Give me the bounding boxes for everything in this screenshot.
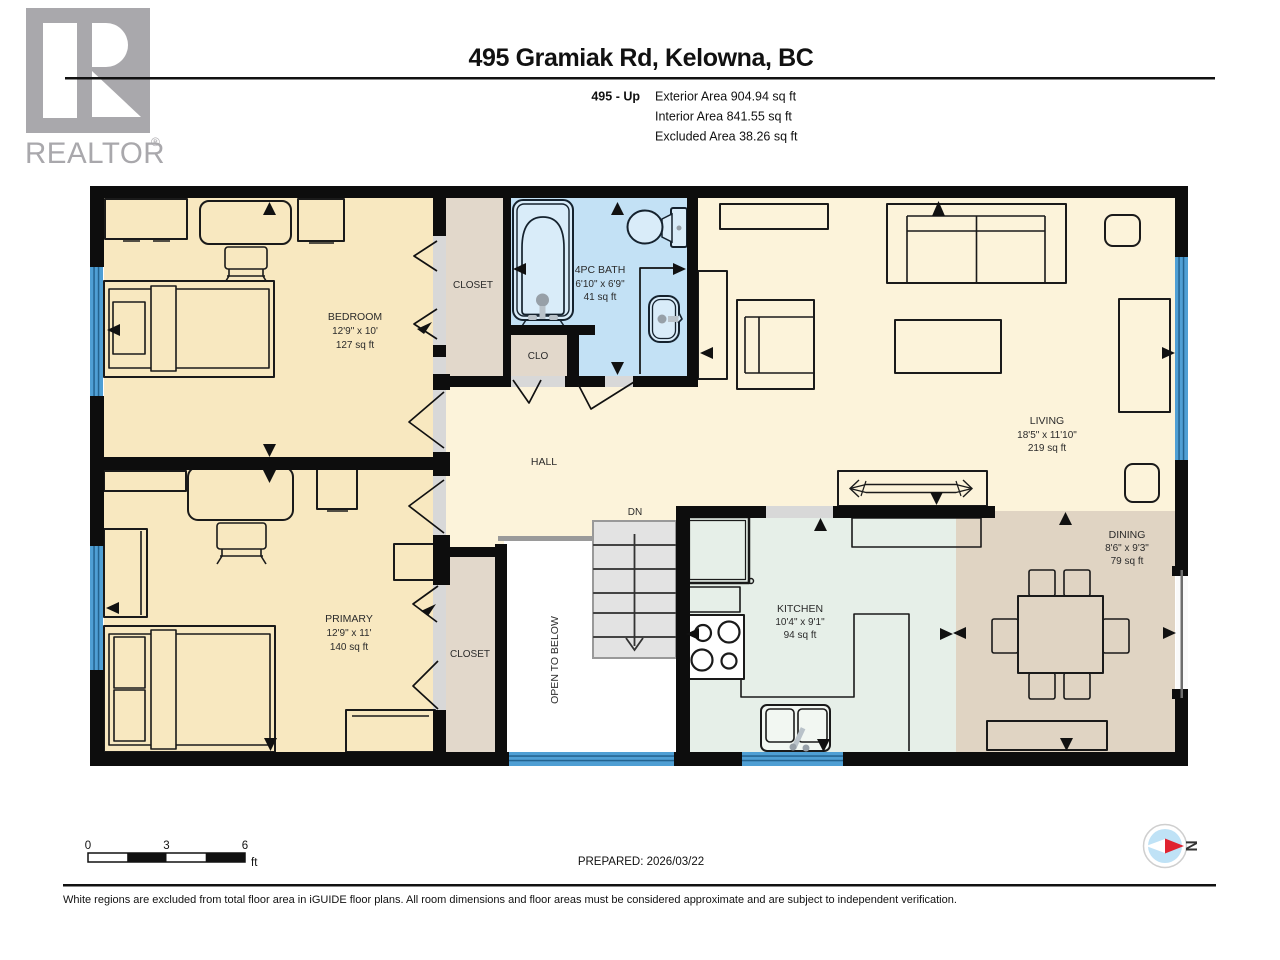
svg-text:White regions are excluded fro: White regions are excluded from total fl… (63, 894, 957, 906)
svg-text:6: 6 (242, 840, 248, 852)
svg-text:140 sq ft: 140 sq ft (330, 642, 369, 653)
svg-text:OPEN TO BELOW: OPEN TO BELOW (549, 616, 561, 704)
svg-text:18'5" x 11'10": 18'5" x 11'10" (1017, 430, 1077, 441)
svg-text:BEDROOM: BEDROOM (328, 311, 382, 323)
svg-text:®: ® (151, 135, 160, 149)
svg-text:KITCHEN: KITCHEN (777, 603, 823, 615)
svg-text:CLO: CLO (528, 351, 549, 362)
svg-text:ft: ft (251, 857, 258, 869)
svg-text:REALTOR: REALTOR (25, 137, 165, 170)
svg-text:PREPARED: 2026/03/22: PREPARED: 2026/03/22 (578, 856, 704, 868)
svg-text:79 sq ft: 79 sq ft (1111, 556, 1144, 567)
svg-text:495 - Up: 495 - Up (591, 90, 640, 104)
svg-text:0: 0 (85, 840, 91, 852)
svg-text:94 sq ft: 94 sq ft (784, 630, 817, 641)
svg-text:495 Gramiak Rd, Kelowna, BC: 495 Gramiak Rd, Kelowna, BC (469, 44, 814, 72)
svg-text:CLOSET: CLOSET (450, 649, 490, 660)
svg-text:Excluded Area 38.26 sq ft: Excluded Area 38.26 sq ft (655, 130, 798, 144)
svg-text:4PC BATH: 4PC BATH (575, 264, 626, 276)
svg-text:Interior Area 841.55 sq ft: Interior Area 841.55 sq ft (655, 110, 792, 124)
svg-text:LIVING: LIVING (1030, 415, 1064, 427)
svg-text:PRIMARY: PRIMARY (325, 613, 373, 625)
svg-text:3: 3 (163, 840, 169, 852)
svg-text:6'10" x 6'9": 6'10" x 6'9" (575, 279, 625, 290)
svg-text:12'9" x 11': 12'9" x 11' (327, 628, 372, 639)
svg-text:219 sq ft: 219 sq ft (1028, 443, 1067, 454)
svg-text:N: N (1182, 840, 1199, 851)
svg-text:8'6" x 9'3": 8'6" x 9'3" (1105, 543, 1149, 554)
svg-text:127 sq ft: 127 sq ft (336, 340, 375, 351)
svg-text:Exterior Area 904.94 sq ft: Exterior Area 904.94 sq ft (655, 90, 797, 104)
svg-text:HALL: HALL (531, 456, 557, 468)
svg-text:CLOSET: CLOSET (453, 280, 493, 291)
svg-text:41 sq ft: 41 sq ft (584, 292, 617, 303)
svg-text:DINING: DINING (1109, 529, 1146, 541)
svg-text:10'4" x 9'1": 10'4" x 9'1" (775, 617, 825, 628)
svg-text:DN: DN (628, 507, 642, 518)
svg-text:12'9" x 10': 12'9" x 10' (332, 326, 378, 337)
